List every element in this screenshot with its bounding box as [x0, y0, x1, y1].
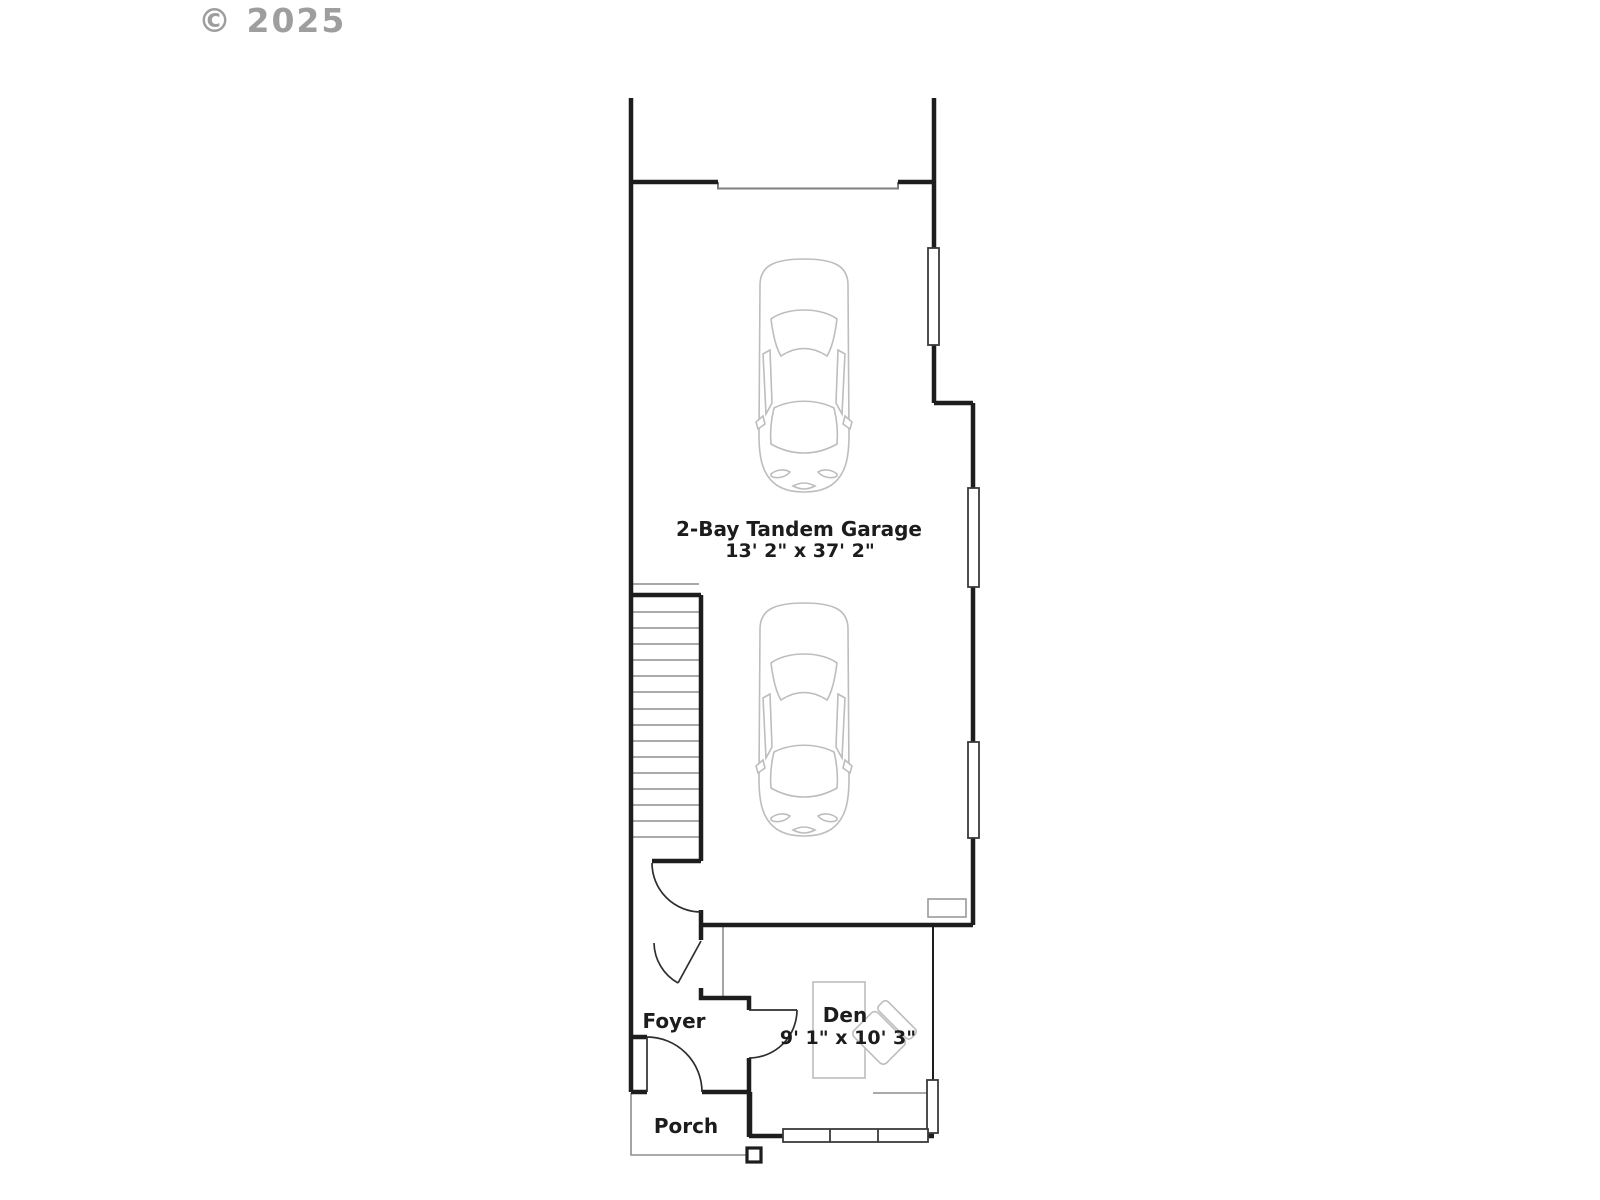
stairs [633, 584, 699, 837]
floor-plan-canvas: 2-Bay Tandem Garage 13' 2" x 37' 2" Den … [0, 0, 1600, 1200]
car-1 [756, 259, 852, 492]
copyright-watermark: © 2025 [198, 1, 346, 40]
garage-label: 2-Bay Tandem Garage [676, 517, 922, 541]
garage-dims-label: 13' 2" x 37' 2" [725, 540, 874, 562]
garage-door-opening [718, 182, 898, 189]
utility-box [928, 899, 966, 917]
garage-entry-door [652, 863, 701, 912]
den-label: Den [823, 1003, 867, 1027]
window-right-upper [928, 248, 939, 345]
stair-treads [633, 612, 699, 837]
front-door [647, 1037, 702, 1092]
den-dims-label: 9' 1" x 10' 3" [780, 1027, 916, 1049]
porch-label: Porch [654, 1114, 718, 1138]
closet-door [654, 941, 701, 983]
window-right-lower [968, 742, 979, 838]
window-den-right [927, 1080, 938, 1133]
floor-plan-page: 2-Bay Tandem Garage 13' 2" x 37' 2" Den … [0, 0, 1600, 1200]
window-right-mid [968, 488, 979, 587]
foyer-label: Foyer [642, 1009, 705, 1033]
car-2 [756, 603, 852, 836]
porch-post [747, 1148, 761, 1162]
window-den-bottom [783, 1129, 928, 1142]
